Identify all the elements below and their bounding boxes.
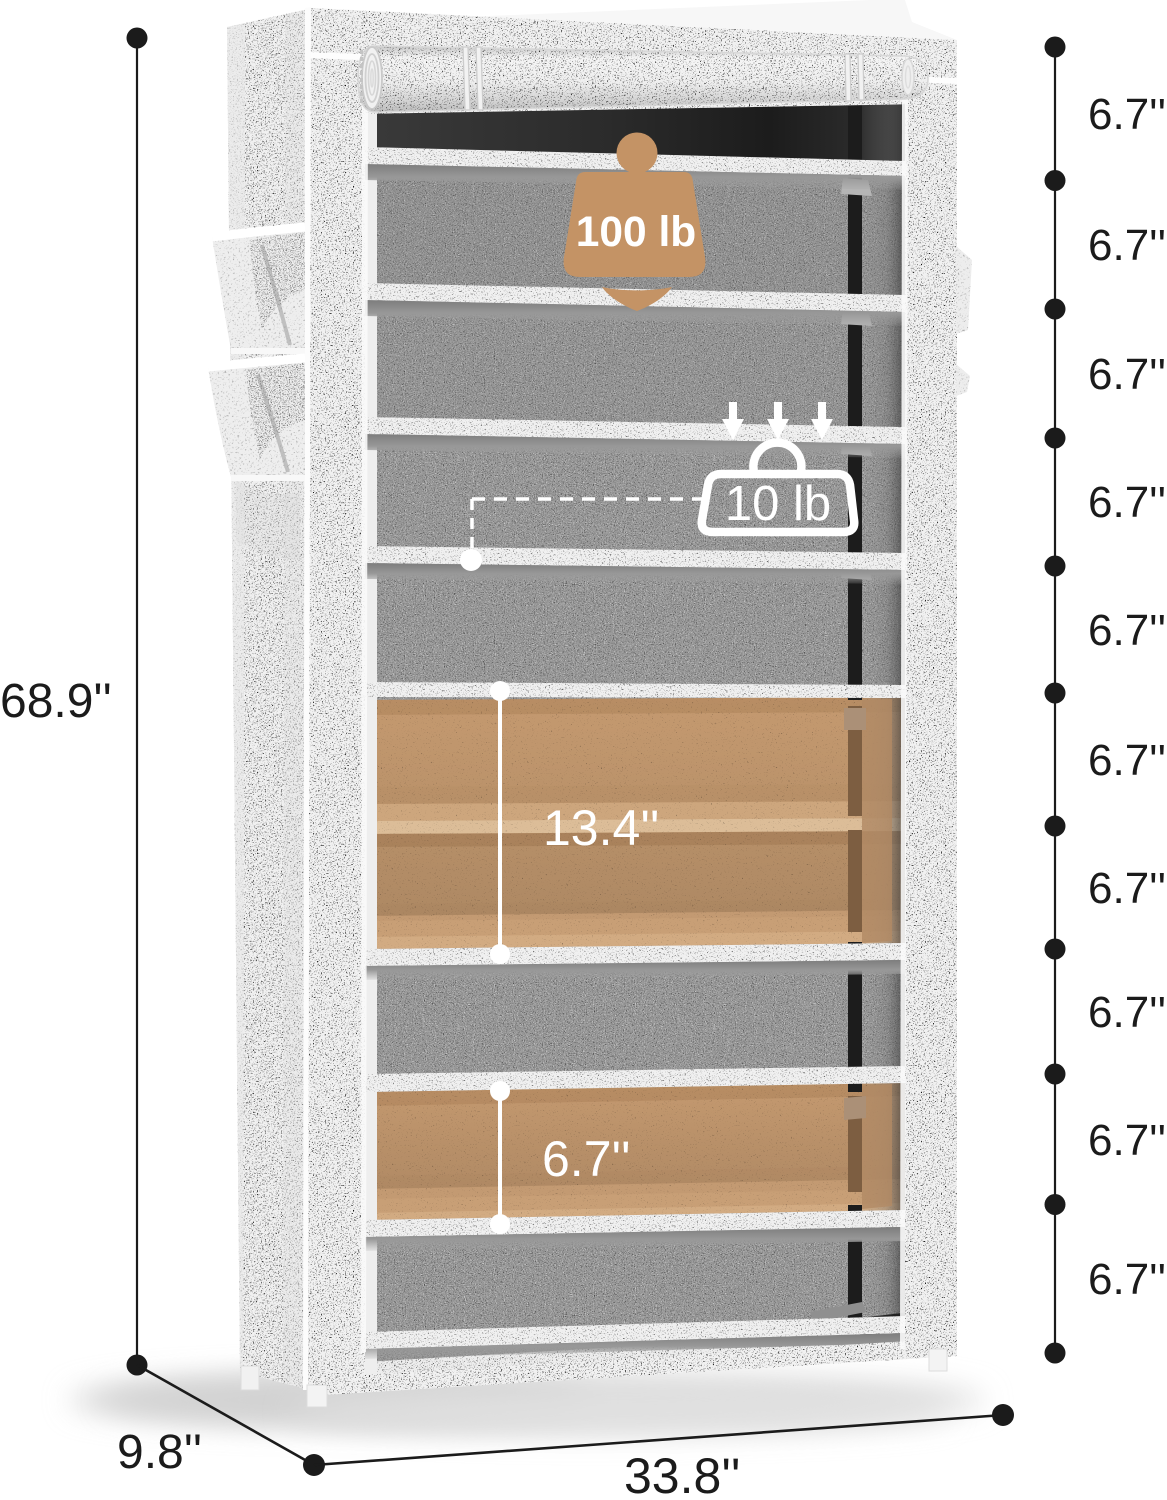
svg-text:6.7'': 6.7'' xyxy=(1088,221,1166,270)
svg-text:9.8'': 9.8'' xyxy=(117,1426,202,1479)
svg-text:33.8'': 33.8'' xyxy=(624,1448,740,1500)
svg-text:13.4'': 13.4'' xyxy=(543,800,659,856)
svg-text:6.7'': 6.7'' xyxy=(1088,736,1166,785)
svg-text:6.7'': 6.7'' xyxy=(542,1131,631,1187)
svg-text:6.7'': 6.7'' xyxy=(1088,478,1166,527)
svg-text:100 lb: 100 lb xyxy=(576,209,697,256)
svg-text:6.7'': 6.7'' xyxy=(1088,606,1166,655)
svg-text:6.7'': 6.7'' xyxy=(1088,90,1166,139)
svg-text:6.7'': 6.7'' xyxy=(1088,1116,1166,1165)
svg-text:6.7'': 6.7'' xyxy=(1088,864,1166,913)
svg-text:68.9'': 68.9'' xyxy=(0,675,112,728)
svg-text:6.7'': 6.7'' xyxy=(1088,350,1166,399)
svg-text:6.7'': 6.7'' xyxy=(1088,988,1166,1037)
svg-text:6.7'': 6.7'' xyxy=(1088,1255,1166,1304)
svg-text:10 lb: 10 lb xyxy=(725,477,831,531)
